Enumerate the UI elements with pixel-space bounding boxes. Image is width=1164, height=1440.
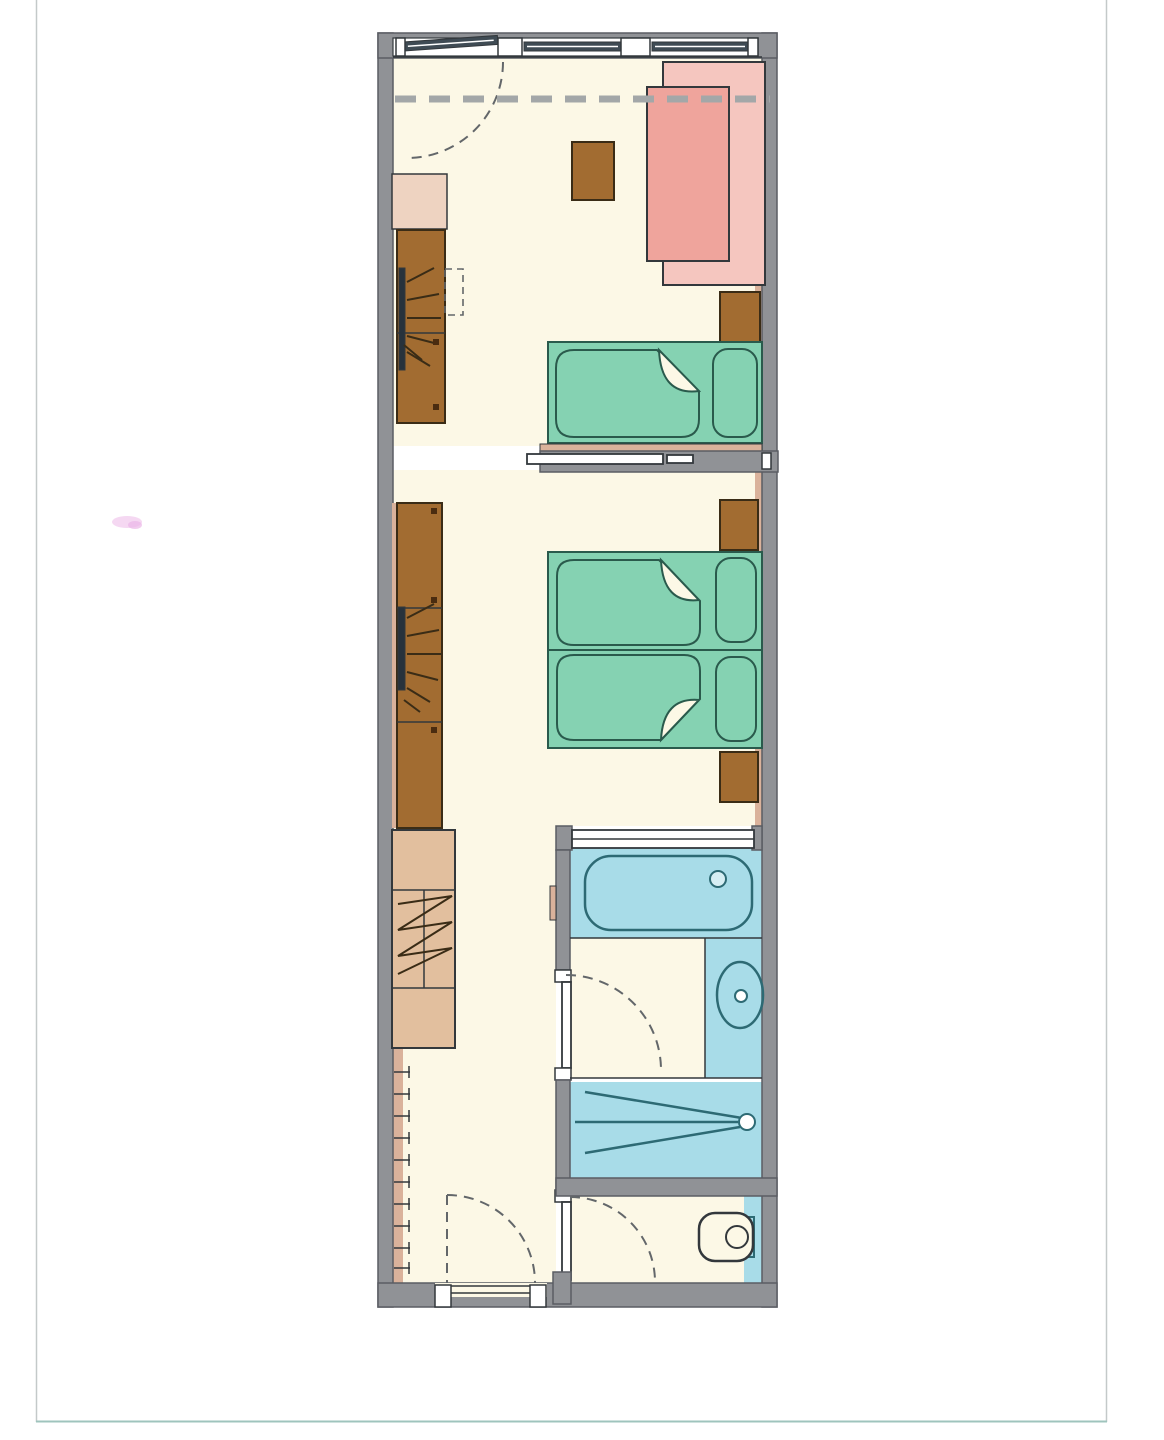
single-bed-pillow — [713, 349, 757, 437]
partition-post-left — [556, 826, 572, 850]
bath-wall-upper — [556, 850, 570, 970]
bath-wall-end — [553, 1272, 571, 1304]
partition-liner — [540, 444, 762, 451]
nightstand-top — [720, 500, 758, 550]
scan-smudge — [112, 516, 142, 529]
wardrobe-knob — [431, 508, 437, 514]
washbasin-drain — [735, 990, 747, 1002]
window-mullion — [498, 38, 522, 56]
floor-plan-drawing — [0, 0, 1164, 1440]
wardrobe-knob — [433, 404, 439, 410]
cabinet-top — [392, 174, 447, 229]
sliding-door-leaf — [527, 454, 663, 464]
coffee-table — [572, 142, 614, 200]
shower-wc-wall — [556, 1178, 777, 1196]
nightstand-bottom — [720, 752, 758, 802]
window-mullion — [748, 38, 758, 56]
vanity-counter — [705, 938, 762, 1078]
shower-floor — [570, 1082, 762, 1178]
toilet-seat — [726, 1226, 748, 1248]
bathroom-floor — [570, 938, 705, 1078]
wardrobe-knob — [431, 597, 437, 603]
pillow-upper — [716, 558, 756, 642]
pillow-lower — [716, 657, 756, 741]
sliding-door-partition — [527, 444, 778, 472]
shower-drain — [739, 1114, 755, 1130]
wardrobe-knob — [433, 339, 439, 345]
sofa-seat — [647, 87, 729, 261]
bedroom-wardrobe — [397, 503, 442, 828]
partition-right-jamb — [762, 453, 771, 469]
wardrobe-knob — [431, 727, 437, 733]
wall-left — [378, 33, 393, 1307]
nightstand-living — [720, 292, 760, 342]
hanging-rail — [399, 268, 405, 370]
window-band — [393, 35, 762, 57]
door-jamb — [555, 1068, 571, 1080]
bath-wall-mid — [556, 1080, 570, 1190]
door-jamb — [530, 1285, 546, 1307]
window-mullion — [396, 38, 405, 56]
single-bed — [548, 342, 762, 443]
luggage-bench — [392, 830, 455, 1048]
bathtub-drain — [710, 871, 726, 887]
bathroom-door-leaf — [562, 982, 571, 1068]
door-frame-strip — [550, 886, 556, 920]
door-jamb — [435, 1285, 451, 1307]
double-bed — [548, 552, 762, 748]
scanned-page — [0, 0, 1164, 1440]
toilet — [699, 1213, 754, 1261]
bathtub-zone-floor — [570, 848, 762, 938]
hanging-rail — [398, 607, 405, 690]
wc-door-leaf — [562, 1202, 571, 1280]
window-mullion — [621, 38, 650, 56]
sliding-door-handle — [667, 455, 693, 463]
